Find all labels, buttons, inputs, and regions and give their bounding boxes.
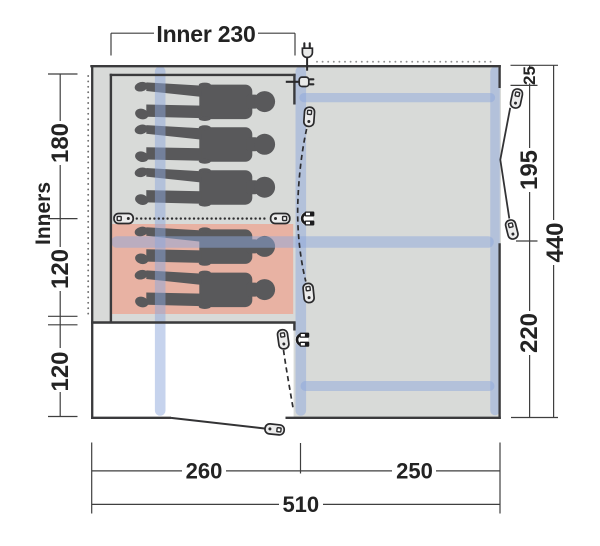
svg-text:Inners: Inners (32, 182, 55, 245)
svg-text:260: 260 (186, 458, 223, 483)
svg-text:440: 440 (542, 222, 569, 262)
svg-text:25: 25 (520, 66, 539, 85)
svg-text:250: 250 (396, 458, 433, 483)
svg-text:180: 180 (47, 123, 74, 163)
svg-text:120: 120 (47, 351, 74, 391)
svg-text:220: 220 (516, 313, 543, 353)
svg-text:Inner 230: Inner 230 (156, 21, 255, 47)
svg-text:120: 120 (47, 249, 74, 289)
svg-text:195: 195 (516, 150, 543, 190)
svg-text:510: 510 (282, 492, 319, 517)
